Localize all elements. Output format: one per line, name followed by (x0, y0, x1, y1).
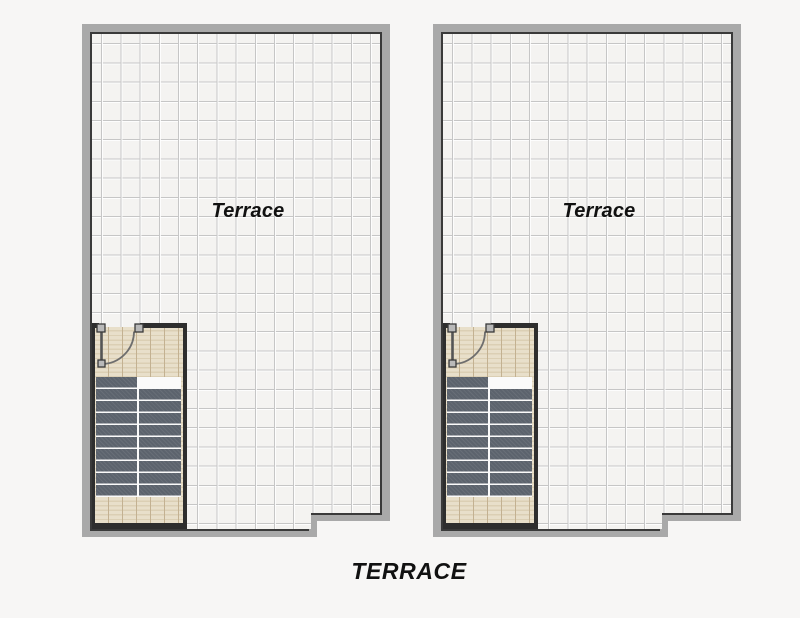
stair-flight-right (139, 389, 181, 497)
stairwell (92, 323, 187, 529)
staircase (447, 377, 532, 497)
floorplan-canvas: Terrace Terrace (0, 0, 800, 618)
floorplan-title: TERRACE (0, 558, 800, 585)
stairwell-wall-top (491, 323, 538, 328)
staircase (96, 377, 181, 497)
stairwell-wall-right (183, 323, 187, 529)
terrace-plan-right: Terrace (433, 24, 741, 537)
terrace-plan-left: Terrace (82, 24, 390, 537)
stair-flight-left (96, 377, 137, 497)
stairwell-wall-right (534, 323, 538, 529)
stairwell-wall-bottom (92, 523, 187, 529)
stair-flight-right (490, 389, 532, 497)
door-swing-icon (444, 323, 496, 369)
stairwell-wall-bottom (443, 523, 538, 529)
stairwell (443, 323, 538, 529)
room-label: Terrace (433, 200, 741, 223)
stairwell-wall-top (140, 323, 187, 328)
stair-flight-left (447, 377, 488, 497)
room-label: Terrace (82, 200, 390, 223)
door-swing-icon (93, 323, 145, 369)
